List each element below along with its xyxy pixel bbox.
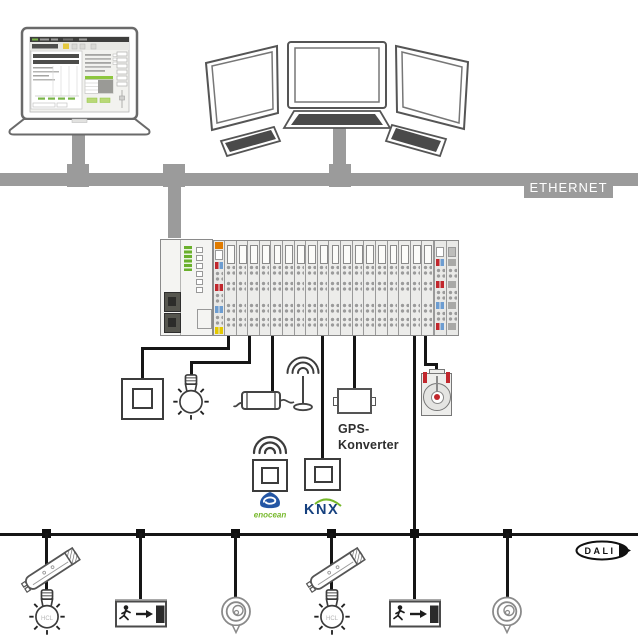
cable-to-gps — [353, 336, 356, 388]
plc-rack — [160, 237, 460, 338]
io-terminal-slice — [271, 241, 283, 335]
cable-left — [234, 403, 243, 407]
rack-ethernet-feed — [168, 186, 181, 238]
cable-to-switch-h — [141, 347, 230, 350]
dali-text: DALI — [585, 546, 616, 556]
cable-to-dali-bus — [413, 336, 416, 599]
cable-to-actuator-v — [424, 336, 427, 366]
io-terminal-slice — [399, 241, 411, 335]
io-terminal-slice — [225, 241, 237, 335]
gps-label-line2: Konverter — [338, 437, 399, 453]
ballast-body — [242, 392, 280, 409]
wireless-receiver-antenna — [233, 352, 321, 414]
io-terminal-slice — [341, 241, 353, 335]
gps-ear-left — [333, 397, 338, 406]
io-terminal-slice — [353, 241, 365, 335]
wifi-arcs-icon — [251, 427, 289, 457]
fluorescent-tube-icon — [300, 545, 374, 595]
knx-text: KNX — [304, 502, 339, 518]
cpu-led-column — [196, 247, 203, 295]
io-terminal-slice — [422, 241, 434, 335]
right-monitor — [396, 46, 468, 129]
dali-junction — [410, 529, 419, 538]
end-terminal-2 — [446, 241, 458, 335]
knx-logo: KNX — [301, 497, 345, 519]
io-terminal-slice — [237, 241, 249, 335]
ethernet-port-1 — [164, 292, 181, 312]
io-terminal-slice — [411, 241, 423, 335]
hcl-label: HCL — [34, 616, 60, 622]
antenna-base — [294, 404, 312, 410]
cable-to-antenna — [280, 400, 294, 403]
left-monitor — [206, 46, 278, 130]
right-keyboard — [386, 125, 446, 156]
downlight-icon — [219, 595, 253, 635]
hcl-bulb-icon — [312, 589, 352, 637]
io-terminal-slice — [260, 241, 272, 335]
knx-switch — [304, 458, 341, 491]
topology-diagram: ETHERNET — [0, 0, 640, 640]
wifi-arcs-icon — [288, 358, 319, 374]
io-terminal-slice — [388, 241, 400, 335]
downlight-icon — [490, 595, 524, 635]
ethernet-port-2 — [164, 313, 181, 333]
enocean-wireless-switch — [252, 459, 288, 492]
monitor-workstation — [200, 30, 480, 190]
io-terminal-slice — [283, 241, 295, 335]
io-terminal-slice — [364, 241, 376, 335]
actuator-mark-right — [446, 372, 450, 383]
hcl-label: HCL — [319, 616, 345, 622]
laptop-screen-ui — [30, 37, 129, 112]
dali-bus-line — [0, 533, 638, 536]
gps-converter-box — [337, 388, 372, 414]
dali-drop-6 — [506, 533, 509, 597]
gps-ear-right — [371, 397, 376, 406]
power-feed-terminal — [214, 241, 225, 335]
io-terminal-strip — [213, 240, 459, 336]
actuator-mark-left — [423, 372, 427, 383]
laptop — [5, 20, 165, 170]
terminal-slices — [225, 241, 434, 335]
cable-to-switch-v2 — [141, 347, 144, 378]
cpu-detail-box — [197, 309, 212, 329]
ethernet-label: ETHERNET — [524, 176, 613, 198]
dali-drop-3 — [234, 533, 237, 597]
dali-drop-2 — [139, 533, 142, 599]
actuator-center-dot — [434, 394, 440, 400]
io-terminal-slice — [306, 241, 318, 335]
io-terminal-slice — [248, 241, 260, 335]
gps-converter-label: GPS- Konverter — [338, 421, 399, 453]
gps-label-line1: GPS- — [338, 421, 399, 437]
fluorescent-tube-icon — [15, 545, 89, 595]
hcl-bulb-icon — [27, 589, 67, 637]
io-terminal-slice — [329, 241, 341, 335]
controller-logo — [184, 246, 192, 271]
dali-logo: DALI — [574, 539, 634, 562]
exit-sign-icon — [115, 599, 167, 629]
center-monitor — [284, 42, 390, 128]
light-bulb-icon — [171, 374, 211, 422]
enocean-logo: enocean — [248, 492, 292, 520]
io-terminal-slice — [295, 241, 307, 335]
end-terminal-1 — [434, 241, 446, 335]
wall-switch — [121, 378, 164, 420]
enocean-text: enocean — [254, 511, 287, 520]
cable-to-knx-switch — [321, 336, 324, 459]
plc-cpu-module — [160, 239, 213, 336]
left-keyboard — [221, 127, 280, 156]
io-terminal-slice — [318, 241, 330, 335]
ethernet-junction-rack — [163, 164, 185, 187]
io-terminal-slice — [376, 241, 388, 335]
exit-sign-icon — [389, 599, 441, 629]
